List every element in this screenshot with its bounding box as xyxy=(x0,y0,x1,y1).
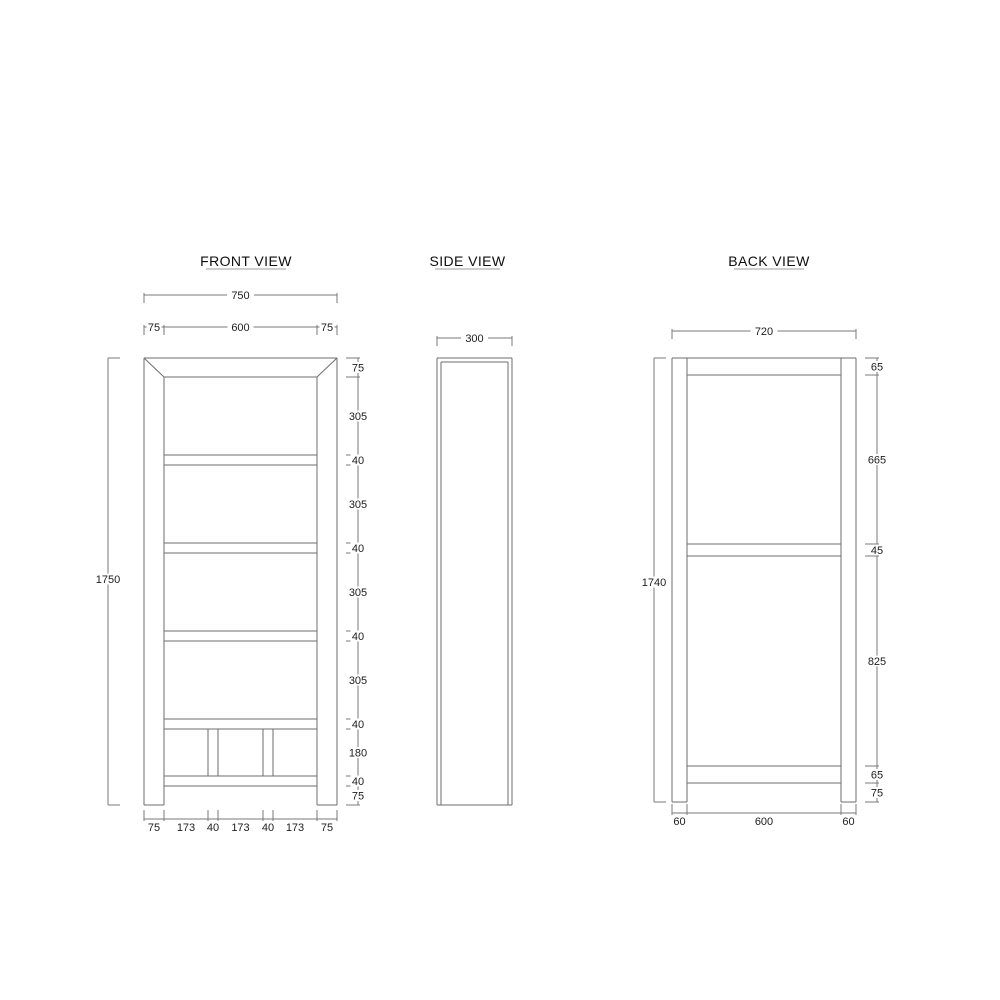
front-dim-right-0: 75 xyxy=(352,362,364,374)
back-dimension-lines xyxy=(654,329,879,815)
side-view-title: SIDE VIEW xyxy=(430,253,506,269)
front-dim-bottom-0: 75 xyxy=(148,822,160,834)
front-dim-right-7: 305 xyxy=(349,675,367,687)
drawing-canvas: FRONT VIEW 750 xyxy=(0,0,1000,1000)
front-dim-bottom-6: 75 xyxy=(321,822,333,834)
front-dim-bottom-2: 40 xyxy=(207,822,219,834)
back-dim-right-5: 75 xyxy=(871,787,883,799)
front-dim-right-8: 40 xyxy=(352,719,364,731)
back-dim-bottom-1: 600 xyxy=(755,816,773,828)
front-dim-right-11: 75 xyxy=(352,790,364,802)
back-dim-bottom-2: 60 xyxy=(842,816,854,828)
front-label-masks xyxy=(92,290,369,802)
back-dim-right-2: 45 xyxy=(871,545,883,557)
back-dim-overall-width: 720 xyxy=(755,326,773,338)
back-dim-right-1: 665 xyxy=(868,454,886,466)
front-dim-right-5: 305 xyxy=(349,587,367,599)
front-dim-right-6: 40 xyxy=(352,631,364,643)
side-dim-depth: 300 xyxy=(465,333,483,345)
side-view-geometry xyxy=(437,358,512,805)
back-dim-right-0: 65 xyxy=(871,361,883,373)
front-dim-top-center: 600 xyxy=(231,322,249,334)
front-top-chamfers xyxy=(144,358,337,377)
front-dim-right-1: 305 xyxy=(349,411,367,423)
front-dim-overall-height: 1750 xyxy=(96,574,120,586)
technical-drawing-sheet: FRONT VIEW 750 xyxy=(0,0,1000,1000)
front-dim-right-10: 40 xyxy=(352,776,364,788)
side-view: SIDE VIEW 300 xyxy=(430,253,512,805)
back-view-title: BACK VIEW xyxy=(728,253,810,269)
front-view-geometry xyxy=(144,358,337,805)
front-dim-right-9: 180 xyxy=(349,747,367,759)
front-view: FRONT VIEW 750 xyxy=(92,253,369,834)
front-dim-bottom-1: 173 xyxy=(177,822,195,834)
front-view-title: FRONT VIEW xyxy=(200,253,292,269)
back-dim-bottom-0: 60 xyxy=(673,816,685,828)
back-dim-overall-height: 1740 xyxy=(642,577,666,589)
front-dim-right-3: 305 xyxy=(349,499,367,511)
front-dim-top-left: 75 xyxy=(148,322,160,334)
front-dim-right-4: 40 xyxy=(352,543,364,555)
back-view-geometry xyxy=(672,358,856,802)
front-dim-right-2: 40 xyxy=(352,455,364,467)
back-dimension-labels: 720 1740 65 665 45 825 65 75 60 600 60 xyxy=(642,326,886,828)
front-dim-top-right: 75 xyxy=(321,322,333,334)
back-label-masks xyxy=(638,326,888,799)
front-dim-bottom-4: 40 xyxy=(262,822,274,834)
front-dimension-labels: 750 75 600 75 1750 75 305 40 305 40 305 … xyxy=(96,290,367,834)
back-view: BACK VIEW 720 1740 65 665 45 825 65 75 6… xyxy=(638,253,888,828)
front-dim-overall-width: 750 xyxy=(231,290,249,302)
front-dim-bottom-5: 173 xyxy=(286,822,304,834)
back-dim-right-4: 65 xyxy=(871,769,883,781)
front-dim-bottom-3: 173 xyxy=(231,822,249,834)
back-dim-right-3: 825 xyxy=(868,656,886,668)
